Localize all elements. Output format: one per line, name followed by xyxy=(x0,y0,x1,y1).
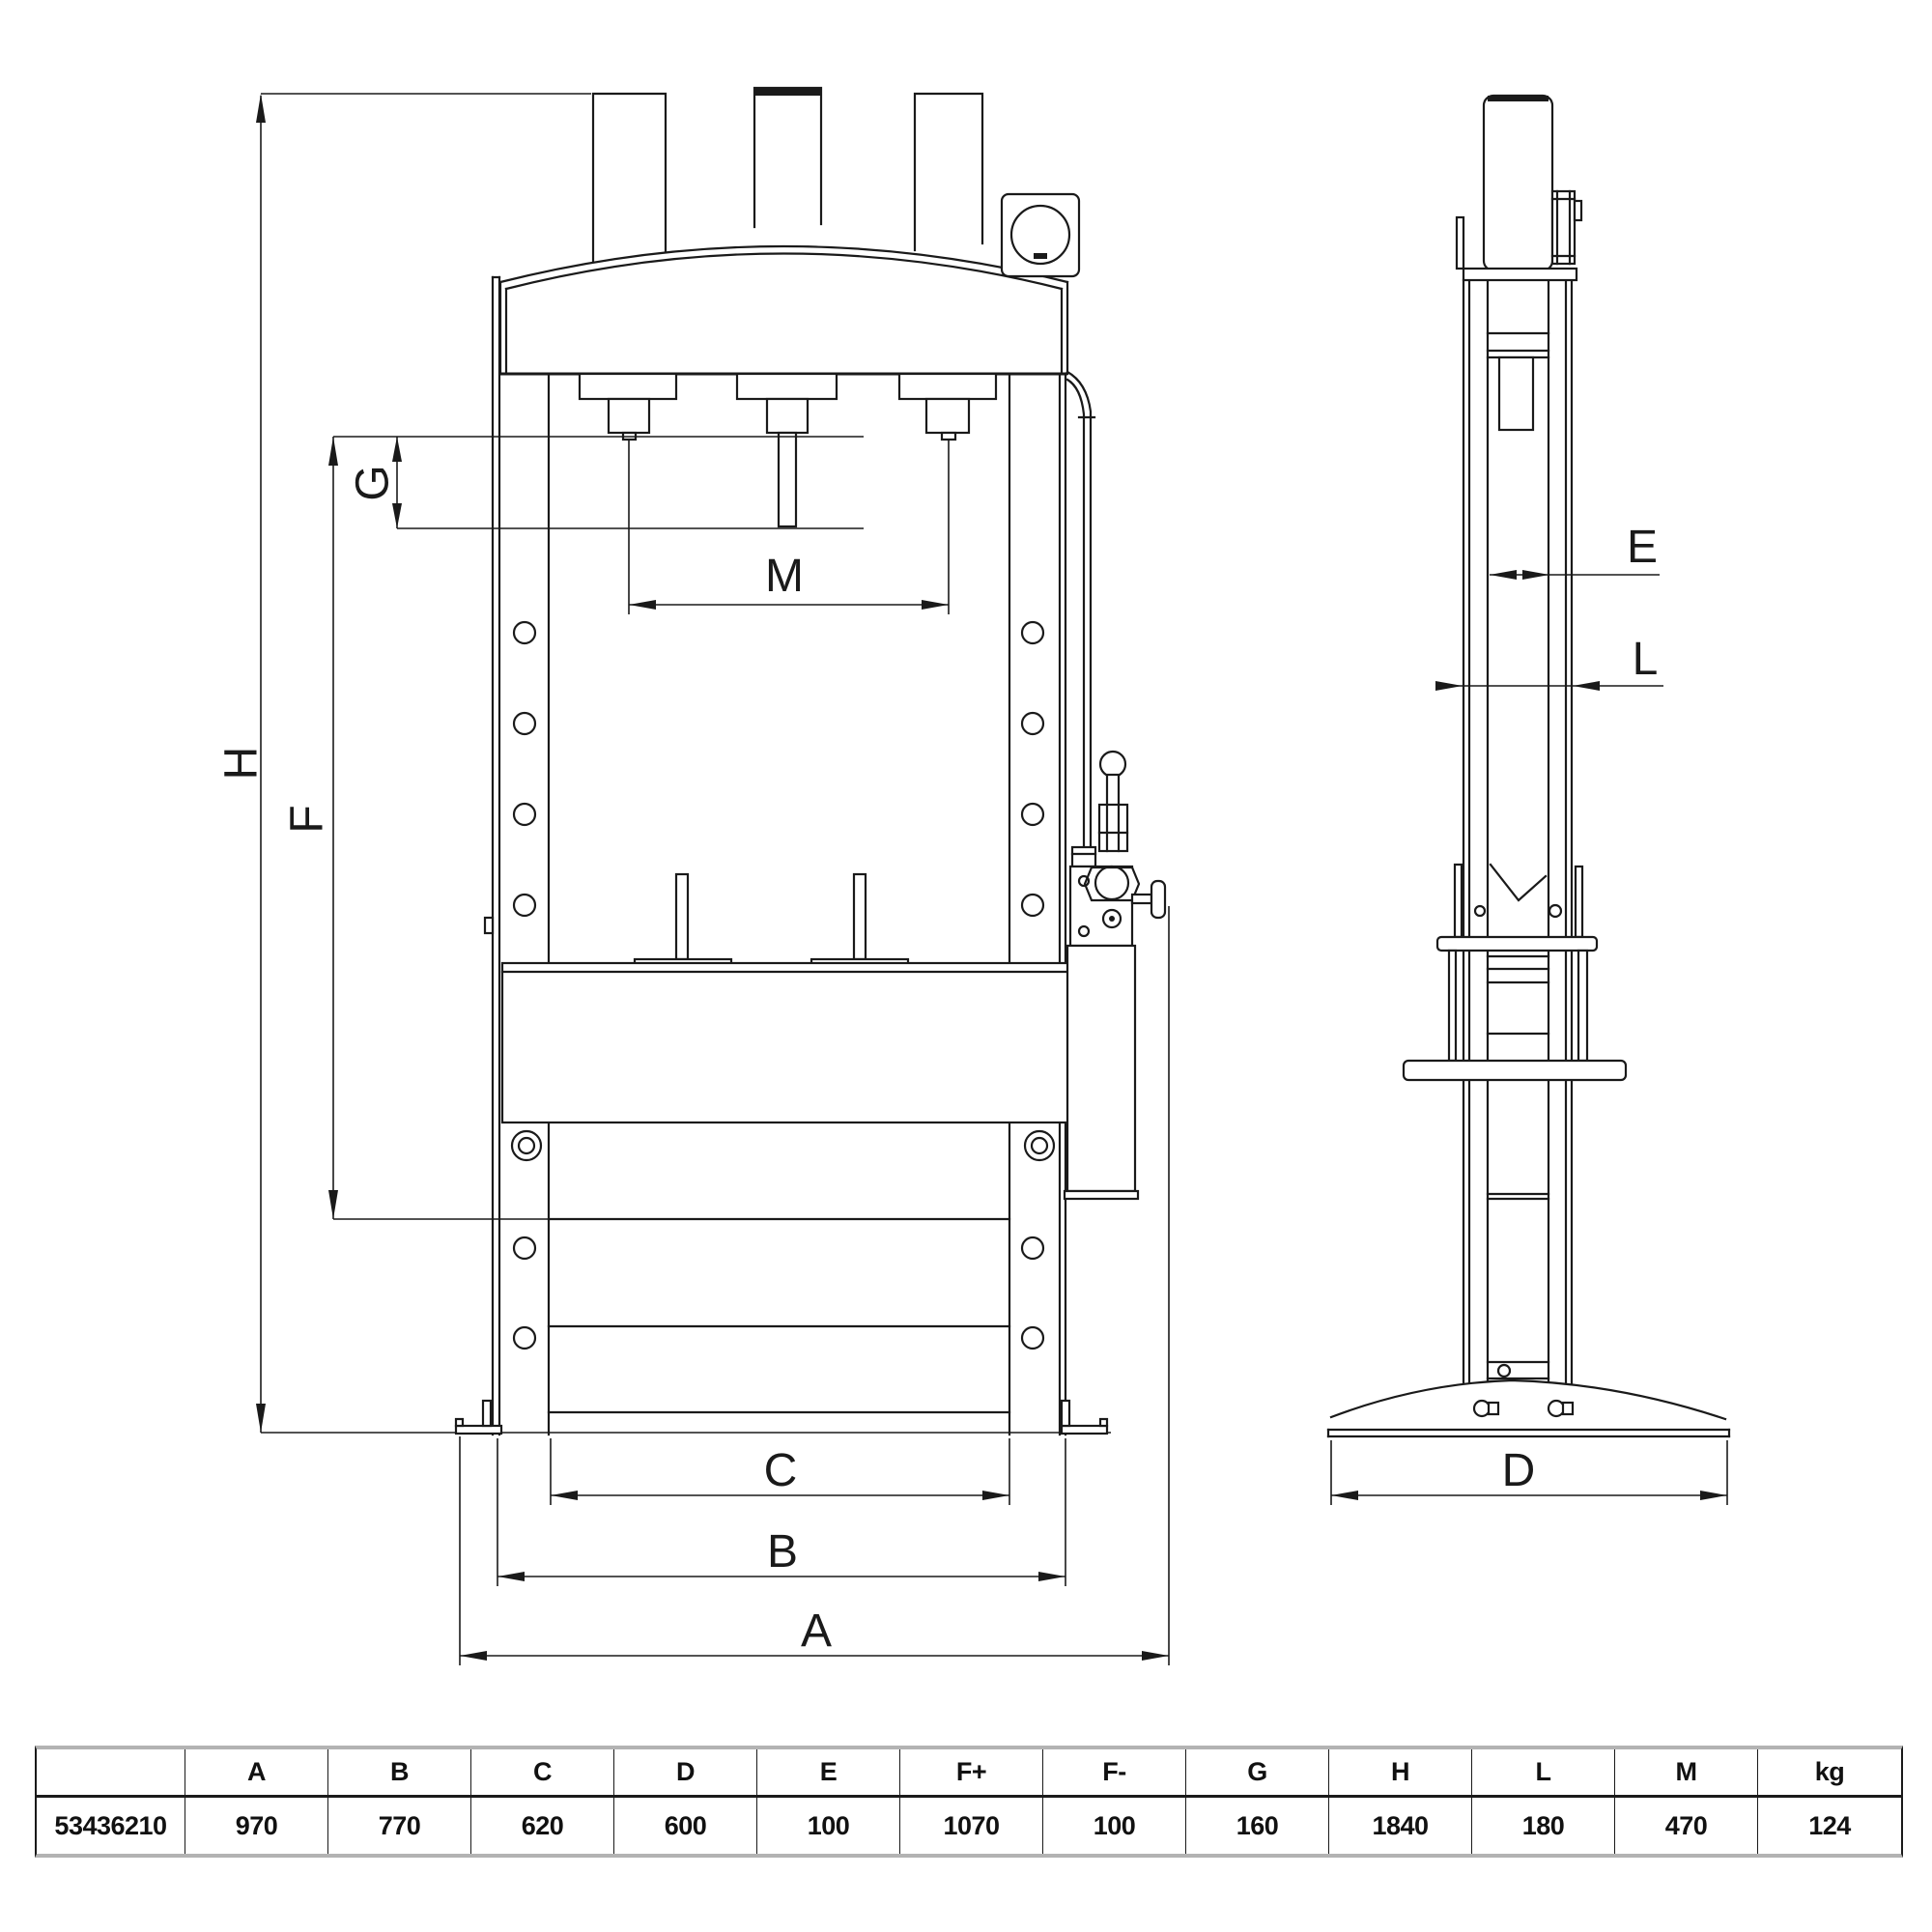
table-value-cell: 100 xyxy=(1043,1798,1186,1854)
side-view-press xyxy=(1328,96,1729,1436)
bolster-beam xyxy=(502,963,1070,1122)
table-header-row: ABCDEF+F-GHLMkg xyxy=(37,1749,1901,1798)
table-value-cell: 470 xyxy=(1615,1798,1758,1854)
table-header-cell: M xyxy=(1615,1749,1758,1795)
table-header-cell: A xyxy=(185,1749,328,1795)
pump-handle-ball xyxy=(1100,752,1125,777)
dim-label-H: H xyxy=(216,747,268,781)
table-header-cell: G xyxy=(1186,1749,1329,1795)
side-cylinder xyxy=(1484,96,1552,270)
dim-label-M: M xyxy=(765,551,804,602)
table-value-cell: 124 xyxy=(1758,1798,1901,1854)
center-ram-piston xyxy=(779,433,796,526)
table-header-cell: B xyxy=(328,1749,471,1795)
technical-drawing-canvas: H F G M C B xyxy=(0,0,1932,1932)
table-value-cell: 180 xyxy=(1472,1798,1615,1854)
pump-reservoir xyxy=(1067,946,1135,1191)
dim-label-F: F xyxy=(282,805,333,833)
side-top-plate xyxy=(1463,269,1577,280)
table-header-cell: E xyxy=(757,1749,900,1795)
v-block xyxy=(1491,865,1546,900)
bolster-eye-bolts xyxy=(512,1131,1054,1160)
table-value-cell: 970 xyxy=(185,1798,328,1854)
lower-cross-members xyxy=(549,1219,1009,1412)
dim-label-C: C xyxy=(764,1445,798,1496)
table-value-cell: 53436210 xyxy=(37,1798,185,1854)
dim-label-G: G xyxy=(348,465,399,500)
left-column xyxy=(493,277,549,1435)
hydraulic-hose xyxy=(1067,372,1094,847)
table-header-cell: F+ xyxy=(900,1749,1043,1795)
table-value-cell: 100 xyxy=(757,1798,900,1854)
table-header-cell: F- xyxy=(1043,1749,1186,1795)
side-column xyxy=(1463,280,1572,1387)
press-head xyxy=(500,246,1067,374)
press-dimension-drawing: H F G M C B xyxy=(0,0,1932,1932)
hydraulic-cylinders xyxy=(593,88,982,264)
column-holes xyxy=(514,622,1043,916)
table-header-cell: C xyxy=(471,1749,614,1795)
release-valve-knob xyxy=(1151,881,1165,918)
dim-label-D: D xyxy=(1502,1445,1536,1496)
table-value-cell: 1070 xyxy=(900,1798,1043,1854)
dim-label-L: L xyxy=(1633,634,1659,685)
column-holes-lower xyxy=(514,1237,1043,1349)
dim-label-E: E xyxy=(1627,522,1658,573)
table-value-cell: 620 xyxy=(471,1798,614,1854)
release-valve-stem xyxy=(1132,895,1151,903)
ram-bosses xyxy=(580,374,996,526)
table-header-cell xyxy=(37,1749,185,1795)
table-data-row: 5343621097077062060010010701001601840180… xyxy=(37,1798,1901,1854)
table-value-cell: 600 xyxy=(614,1798,757,1854)
side-base xyxy=(1328,1380,1729,1436)
specification-table: ABCDEF+F-GHLMkg 534362109707706206001001… xyxy=(35,1746,1903,1858)
table-value-cell: 160 xyxy=(1186,1798,1329,1854)
table-header-cell: H xyxy=(1329,1749,1472,1795)
table-header-cell: L xyxy=(1472,1749,1615,1795)
pressure-gauge xyxy=(1002,194,1079,276)
side-ram-nose xyxy=(1499,357,1533,430)
table-header-cell: kg xyxy=(1758,1749,1901,1795)
table-header-cell: D xyxy=(614,1749,757,1795)
press-pins xyxy=(635,874,908,967)
table-value-cell: 1840 xyxy=(1329,1798,1472,1854)
right-column xyxy=(1009,369,1065,1435)
dim-label-B: B xyxy=(767,1526,798,1577)
hand-pump xyxy=(1065,752,1165,1199)
side-gauge-bracket xyxy=(1552,191,1581,264)
table-value-cell: 770 xyxy=(328,1798,471,1854)
front-view-press xyxy=(261,88,1165,1435)
cylinder-cap xyxy=(754,88,821,96)
dim-label-A: A xyxy=(801,1605,832,1657)
